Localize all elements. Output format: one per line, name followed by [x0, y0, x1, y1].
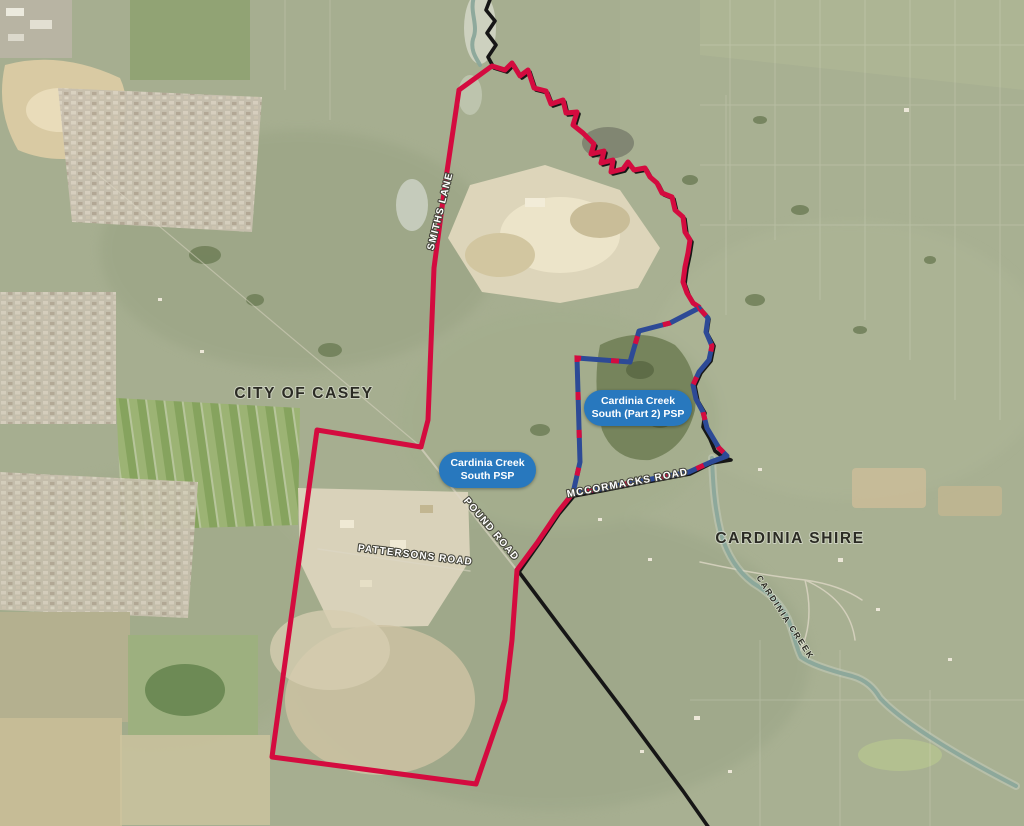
- region-label-city-of-casey: CITY OF CASEY: [234, 385, 373, 402]
- aerial-map-svg: CITY OF CASEY CARDINIA SHIRE SMITHS LANE…: [0, 0, 1024, 826]
- badge-cardinia-creek-south-part2-psp: Cardinia Creek South (Part 2) PSP: [584, 390, 692, 426]
- map-canvas: CITY OF CASEY CARDINIA SHIRE SMITHS LANE…: [0, 0, 1024, 826]
- badge-cardinia-creek-south-psp: Cardinia Creek South PSP: [439, 452, 536, 488]
- region-label-cardinia-shire: CARDINIA SHIRE: [715, 530, 864, 547]
- aerial-background: [0, 0, 1024, 826]
- badge-line: Cardinia Creek: [601, 395, 675, 409]
- badge-line: South (Part 2) PSP: [592, 408, 685, 422]
- badge-line: Cardinia Creek: [450, 457, 524, 471]
- badge-line: South PSP: [461, 470, 515, 484]
